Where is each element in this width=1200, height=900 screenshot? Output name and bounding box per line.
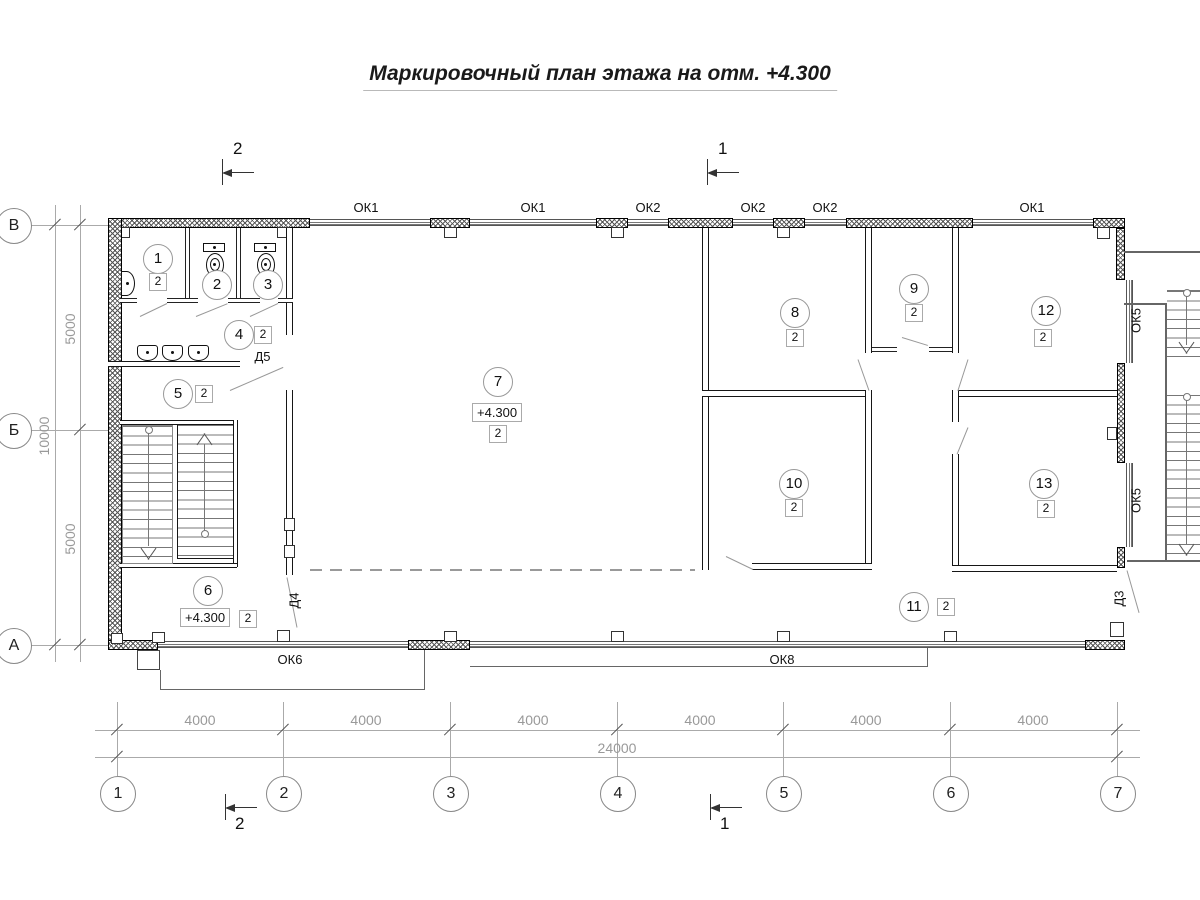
stall-front-wall [228, 298, 260, 303]
finish-badge: 2 [1037, 500, 1055, 518]
stall-partition [185, 228, 190, 298]
column-marker [777, 227, 790, 238]
grid-bubble-5: 5 [766, 776, 802, 812]
dim-4000: 4000 [336, 712, 396, 728]
stair-arrow-origin [145, 426, 153, 434]
wc-cistern-dot [213, 246, 216, 249]
ext-stair-landing-edge [1124, 303, 1167, 305]
column-marker [611, 227, 624, 238]
room-label-10: 10 [779, 469, 809, 499]
porch-outline [160, 670, 161, 690]
section-mark-1-top-label: 1 [718, 139, 727, 159]
grid-leader [950, 702, 951, 776]
room-label-13: 13 [1029, 469, 1059, 499]
stairwell-bottom-wall [120, 563, 237, 568]
wall-right-pier [1117, 363, 1125, 463]
section-mark-2-top-label: 2 [233, 139, 242, 159]
dim-4000: 4000 [670, 712, 730, 728]
door-swing-d5 [230, 367, 284, 391]
elevation-mark: +4.300 [472, 403, 522, 422]
window-ok8 [470, 641, 1085, 648]
window-label-ok2: ОК2 [618, 200, 678, 215]
drawing-title: Маркировочный план этажа на отм. +4.300 [363, 62, 837, 91]
room-label-7: 7 [483, 367, 513, 397]
finish-badge: 2 [786, 329, 804, 347]
ok8-extent-line [927, 648, 928, 667]
wall-hall-right [702, 228, 709, 570]
window-label-ok1: ОК1 [1002, 200, 1062, 215]
grid-line-row-v [29, 225, 108, 226]
wall-post [284, 545, 295, 558]
door-swing-d3 [1127, 570, 1140, 613]
window-label-ok6: ОК6 [260, 652, 320, 667]
window-ok1 [470, 219, 596, 226]
window-ok2 [805, 219, 846, 226]
ext-stair-arrow-origin [1183, 393, 1191, 401]
grid-bubble-1: 1 [100, 776, 136, 812]
ext-stair-arrow-stem [1186, 397, 1187, 545]
window-label-ok2: ОК2 [795, 200, 855, 215]
wall-stub [929, 347, 952, 352]
door-swing-room10 [726, 556, 753, 570]
room-label-3: 3 [253, 270, 283, 300]
wall-room13-left [952, 454, 959, 572]
ok8-extent-line [470, 666, 928, 667]
finish-badge: 2 [239, 610, 257, 628]
grid-bubble-6: 6 [933, 776, 969, 812]
column-marker [111, 633, 123, 644]
ext-stair-arrow-origin [1183, 289, 1191, 297]
dim-4000: 4000 [1003, 712, 1063, 728]
room-label-1: 1 [143, 244, 173, 274]
ext-stair-arrow-stem [1186, 293, 1187, 345]
finish-badge: 2 [1034, 329, 1052, 347]
stair-down-arrow-stem [148, 430, 149, 546]
finish-badge: 2 [937, 598, 955, 616]
finish-badge: 2 [905, 304, 923, 322]
wall-post [284, 518, 295, 531]
column-marker [777, 631, 790, 642]
finish-badge: 2 [489, 425, 507, 443]
wall-room9-12 [952, 228, 959, 353]
column-marker [444, 631, 457, 642]
wall-room8-9 [865, 228, 872, 353]
finish-badge: 2 [149, 273, 167, 291]
room-label-2: 2 [202, 270, 232, 300]
dim-4000: 4000 [503, 712, 563, 728]
wc-toilet-dot [213, 263, 216, 266]
grid-bubble-row-a: А [0, 628, 32, 664]
window-label-ok8: ОК8 [752, 652, 812, 667]
column-marker [444, 227, 457, 238]
wall-bottom-pier [408, 640, 470, 650]
finish-badge: 2 [254, 326, 272, 344]
section-mark-2-top-arrowhead [222, 169, 232, 177]
window-label-ok2: ОК2 [723, 200, 783, 215]
section-mark-2-bottom-label: 2 [235, 814, 244, 834]
dim-4000: 4000 [170, 712, 230, 728]
window-label-ok1: ОК1 [336, 200, 396, 215]
sink-dot [146, 351, 149, 354]
dim-5000: 5000 [62, 289, 78, 369]
wall-sink-dot [126, 282, 129, 285]
dashed-edge-line [310, 569, 695, 571]
finish-badge: 2 [195, 385, 213, 403]
wall-room13-left-post [952, 390, 959, 422]
room-label-4: 4 [224, 320, 254, 350]
window-ok2 [628, 219, 668, 226]
window-label-ok5: ОК5 [1129, 461, 1144, 541]
wall-top-pier [846, 218, 973, 228]
dim-line-left-total [55, 205, 56, 662]
ext-stair-flight [1167, 395, 1200, 558]
stair-up-arrow-stem [204, 444, 205, 532]
ext-stair-bottom-edge [1127, 560, 1200, 562]
room-label-8: 8 [780, 298, 810, 328]
grid-leader [1117, 702, 1118, 776]
room-label-6: 6 [193, 576, 223, 606]
column-marker [611, 631, 624, 642]
room-label-5: 5 [163, 379, 193, 409]
door-swing-room13 [957, 427, 969, 454]
door-swing [140, 303, 167, 317]
porch-outline [160, 689, 425, 690]
window-ok6 [158, 641, 408, 648]
grid-bubble-4: 4 [600, 776, 636, 812]
room-label-11: 11 [899, 592, 929, 622]
grid-line-row-a [29, 645, 108, 646]
wall-wc-right-upper [286, 228, 293, 335]
grid-leader [450, 702, 451, 776]
window-label-ok5: ОК5 [1129, 281, 1144, 361]
door-label-d4: Д4 [287, 561, 302, 641]
door-label-d3: Д3 [1112, 559, 1127, 639]
section-mark-1-bottom-label: 1 [720, 814, 729, 834]
wall-top-pier [668, 218, 733, 228]
dim-line-total [95, 757, 1140, 758]
grid-leader [783, 702, 784, 776]
grid-leader [617, 702, 618, 776]
column-marker [944, 631, 957, 642]
elevation-mark: +4.300 [180, 608, 230, 627]
grid-bubble-row-b: Б [0, 413, 32, 449]
wall-room10-bottom [752, 563, 872, 570]
stair-flight-up [177, 424, 234, 559]
sink-dot [197, 351, 200, 354]
dim-line-left-bays [80, 205, 81, 662]
wc-toilet-dot [264, 263, 267, 266]
wall-left [108, 218, 122, 650]
wall-room10-top [702, 390, 872, 397]
wall-right-pier [1116, 228, 1125, 280]
grid-bubble-7: 7 [1100, 776, 1136, 812]
grid-leader [117, 702, 118, 776]
stair-arrow-origin [201, 530, 209, 538]
door-label-d5: Д5 [240, 349, 285, 364]
wall-notch [1107, 427, 1117, 440]
window-ok1 [973, 219, 1093, 226]
wall-room13-bottom [952, 565, 1117, 572]
door-swing [250, 303, 279, 317]
grid-bubble-3: 3 [433, 776, 469, 812]
dim-5000: 5000 [62, 499, 78, 579]
sink-dot [171, 351, 174, 354]
wall-bottom-pier [1085, 640, 1125, 650]
wall-room5-top [108, 361, 240, 367]
section-mark-1-top-arrowhead [707, 169, 717, 177]
column-marker [1097, 227, 1110, 239]
floor-plan-drawing: Маркировочный план этажа на отм. +4.300 … [0, 0, 1200, 900]
dim-10000: 10000 [36, 396, 52, 476]
door-swing [957, 359, 968, 391]
door-swing [858, 359, 870, 390]
stall-front-wall [120, 298, 137, 303]
porch-outline [424, 650, 425, 690]
dim-4000: 4000 [836, 712, 896, 728]
wall-room10-right [865, 390, 872, 570]
wall-stub [872, 347, 897, 352]
finish-badge: 2 [785, 499, 803, 517]
wc-cistern-dot [264, 246, 267, 249]
porch-column [137, 650, 160, 670]
section-mark-1-bottom-arrowhead [710, 804, 720, 812]
window-ok2 [733, 219, 773, 226]
section-mark-2-bottom-arrowhead [225, 804, 235, 812]
column-marker [152, 632, 165, 643]
window-ok1 [310, 219, 430, 226]
wall-room13-top [952, 390, 1117, 397]
ext-stair-landing-edge [1124, 251, 1200, 253]
stall-partition [236, 228, 241, 298]
room-label-9: 9 [899, 274, 929, 304]
window-label-ok1: ОК1 [503, 200, 563, 215]
dim-line-bays [95, 730, 1140, 731]
grid-leader [283, 702, 284, 776]
grid-bubble-2: 2 [266, 776, 302, 812]
grid-bubble-row-v: В [0, 208, 32, 244]
door-swing-room9 [902, 337, 928, 346]
stall-front-wall [167, 298, 198, 303]
dim-24000: 24000 [577, 740, 657, 756]
stall-front-wall [278, 298, 293, 303]
room-label-12: 12 [1031, 296, 1061, 326]
door-swing [196, 303, 228, 317]
